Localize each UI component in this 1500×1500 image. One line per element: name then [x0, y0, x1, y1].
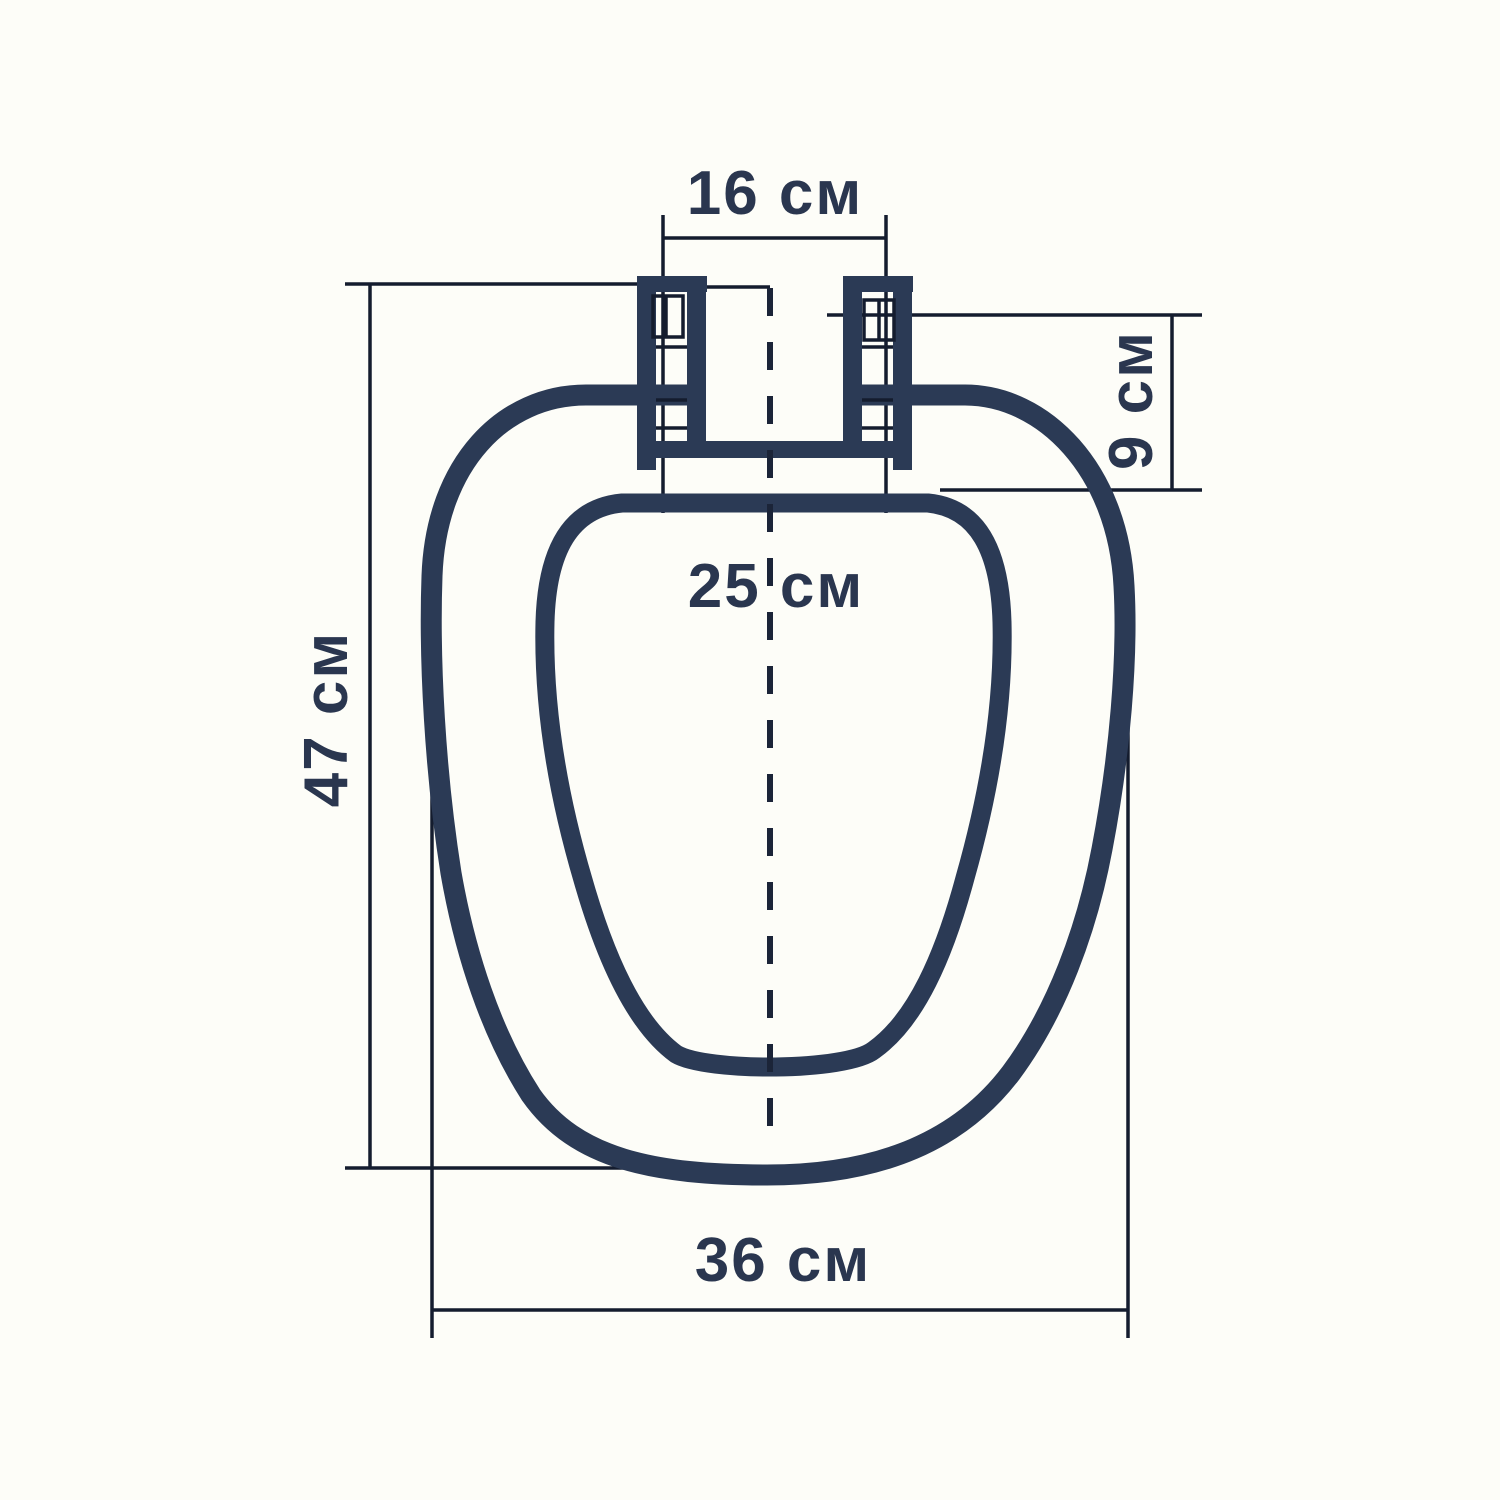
dim-label-9cm: 9 см — [1097, 330, 1166, 470]
dim-label-25cm: 25 см — [688, 552, 865, 621]
right-hinge-inner-bar — [843, 276, 862, 458]
hinge-connecting-bar — [646, 441, 903, 458]
dim-label-47cm: 47 см — [292, 631, 361, 808]
dim-label-16cm: 16 см — [687, 159, 864, 228]
right-hinge-outer-bar — [893, 276, 912, 470]
left-hinge-inner-bar — [687, 276, 706, 458]
dim-label-36cm: 36 см — [695, 1226, 872, 1295]
toilet-seat-dimension-diagram: 16 см 9 см 47 см 25 см 36 см — [0, 0, 1500, 1500]
scanned-dimension-drawing: 16 см 9 см 47 см 25 см 36 см — [0, 0, 1500, 1500]
